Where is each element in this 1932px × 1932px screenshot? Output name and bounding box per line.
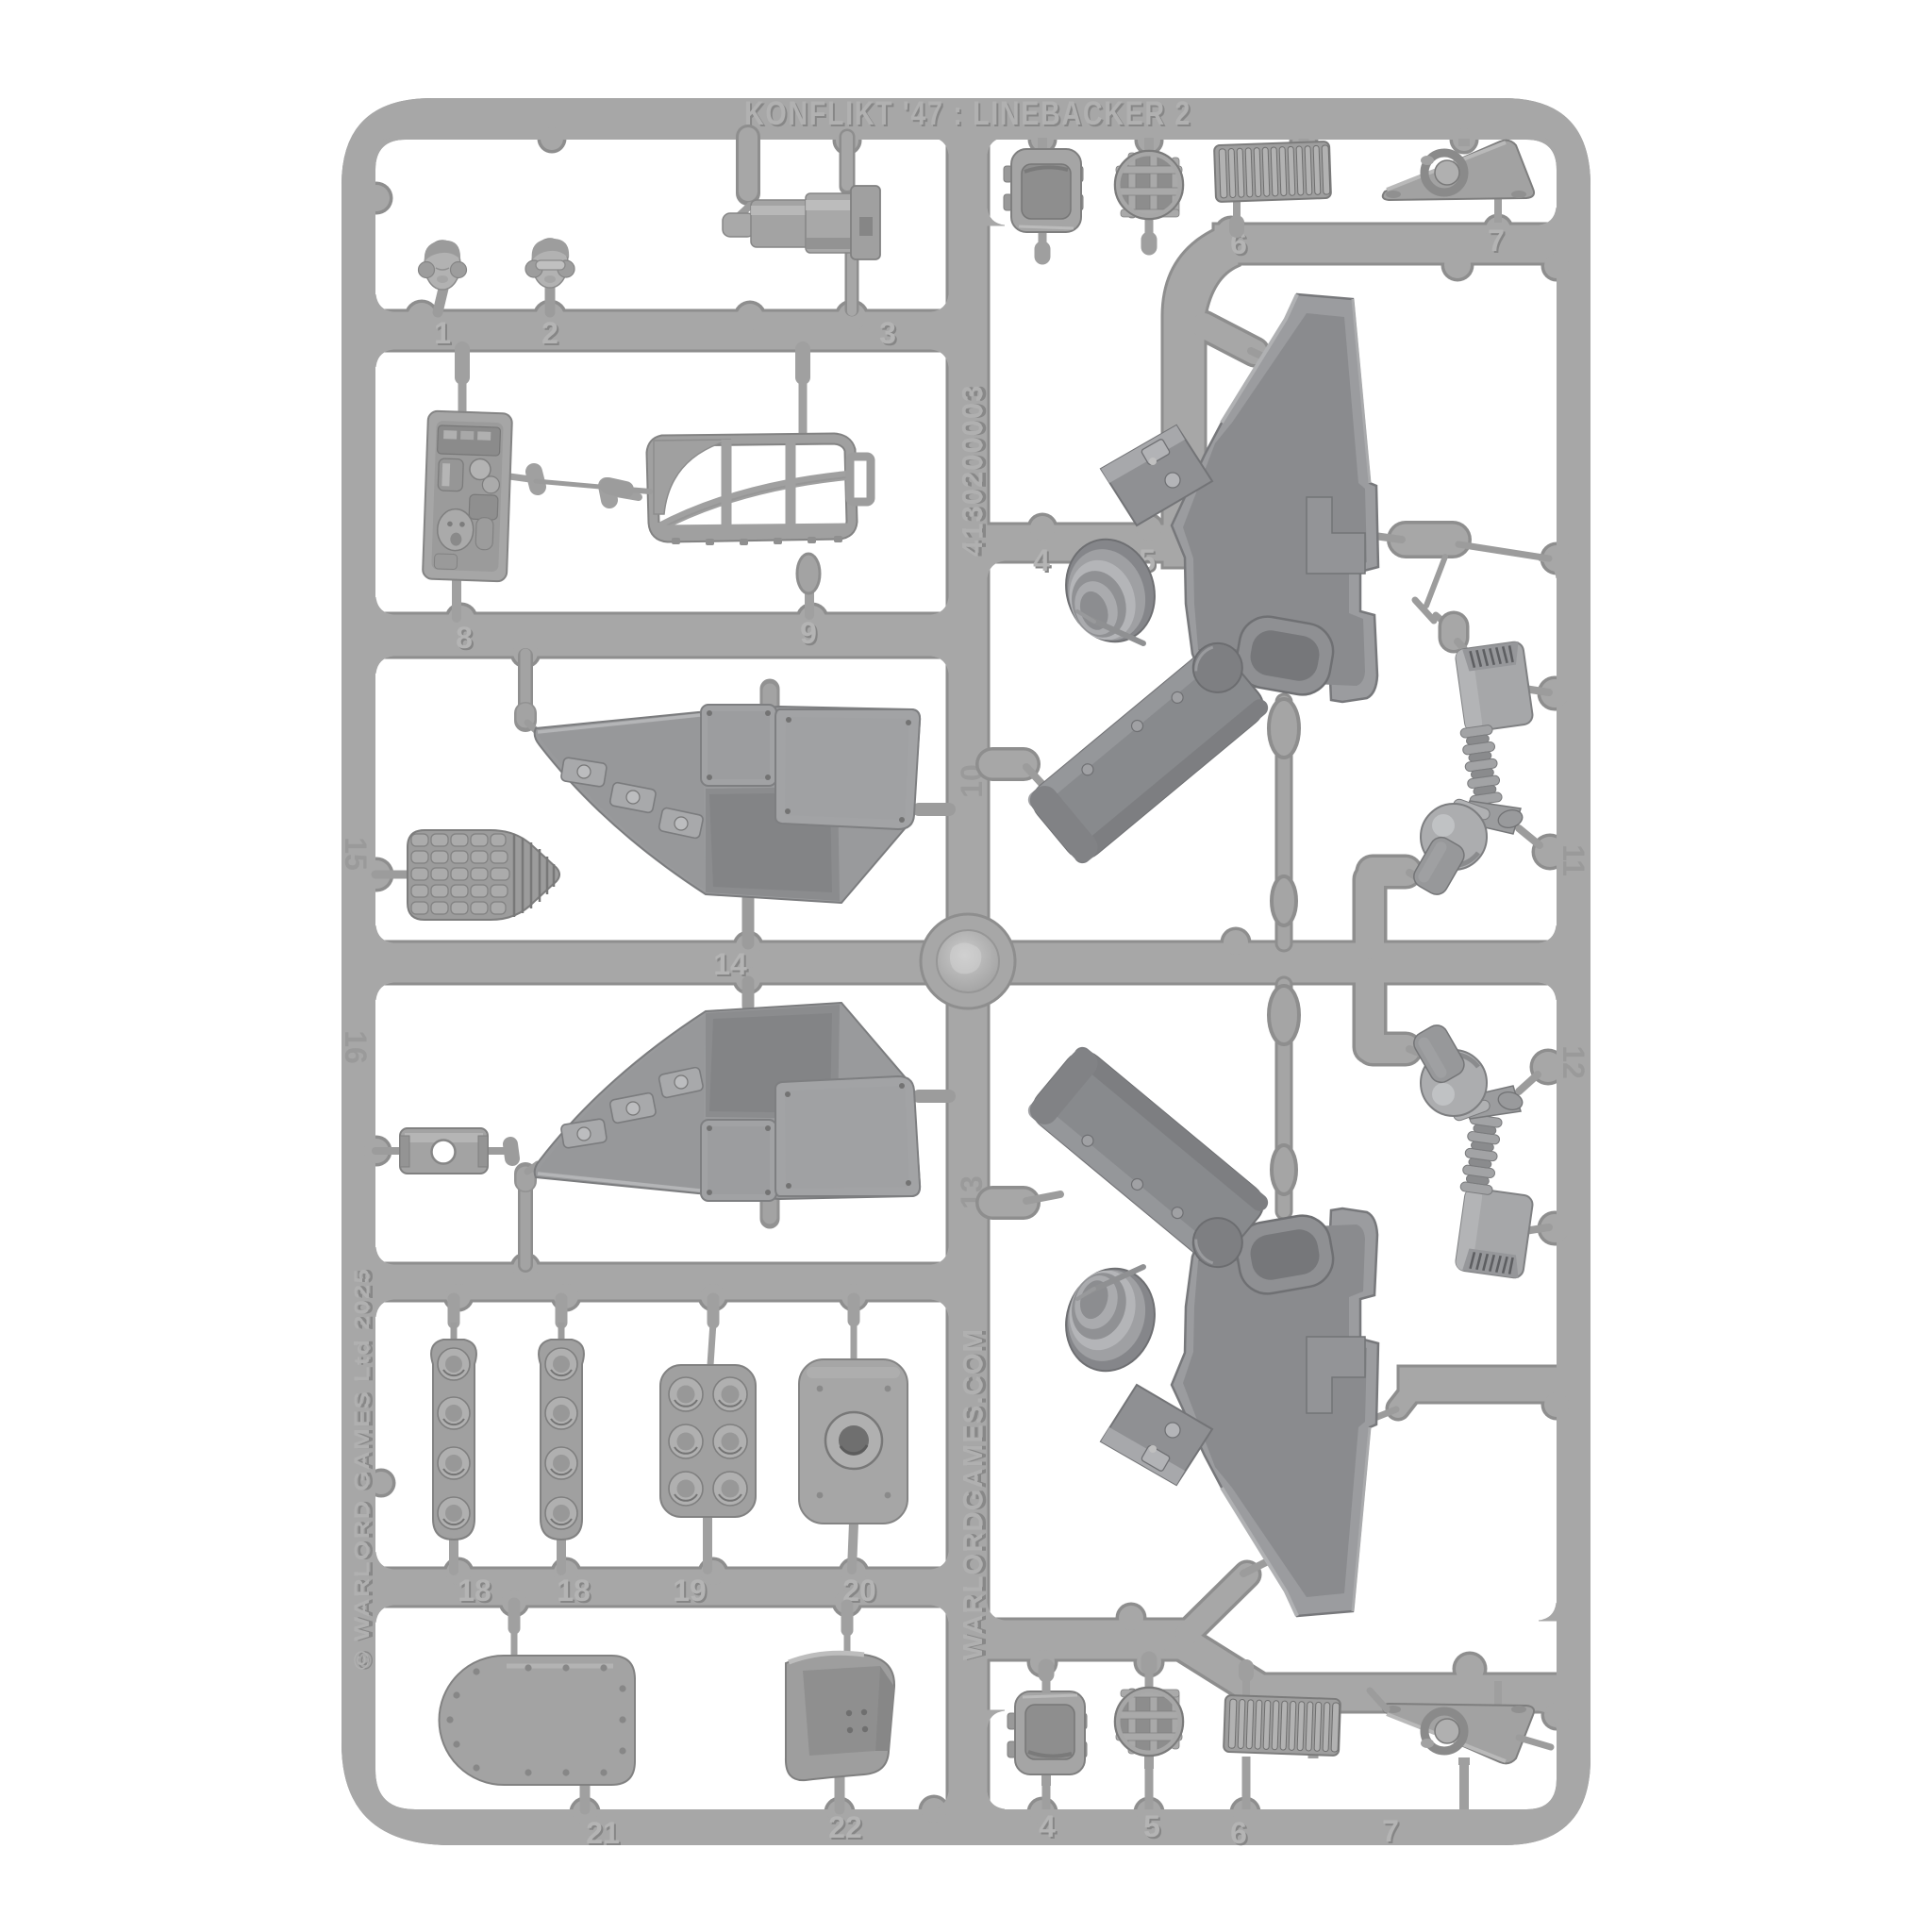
svg-text:7: 7	[1488, 224, 1505, 258]
svg-text:16: 16	[339, 1030, 373, 1064]
svg-text:KONFLIKT '47 : LINEBACKER 2: KONFLIKT '47 : LINEBACKER 2	[744, 95, 1191, 132]
svg-text:1: 1	[434, 316, 451, 350]
svg-text:8: 8	[456, 621, 473, 655]
svg-text:4: 4	[1039, 1809, 1056, 1843]
svg-text:4130200003: 4130200003	[956, 385, 989, 557]
svg-text:15: 15	[339, 837, 373, 871]
svg-text:14: 14	[713, 947, 747, 981]
svg-text:5: 5	[1143, 1809, 1160, 1843]
svg-text:22: 22	[828, 1810, 862, 1844]
svg-text:4: 4	[1033, 543, 1050, 577]
svg-text:19: 19	[673, 1574, 707, 1607]
svg-text:WARLORDGAMES.COM: WARLORDGAMES.COM	[958, 1328, 989, 1660]
svg-text:7: 7	[1382, 1814, 1399, 1848]
svg-text:11: 11	[1557, 844, 1591, 876]
svg-text:2: 2	[541, 316, 558, 350]
svg-text:12: 12	[1557, 1045, 1591, 1079]
svg-text:21: 21	[586, 1816, 620, 1850]
svg-text:9: 9	[800, 616, 817, 650]
svg-text:18: 18	[458, 1574, 491, 1607]
svg-text:3: 3	[879, 316, 896, 350]
svg-text:© WARLORD GAMES Ltd 2025: © WARLORD GAMES Ltd 2025	[350, 1268, 374, 1670]
svg-text:6: 6	[1230, 1816, 1247, 1850]
svg-text:18: 18	[557, 1574, 591, 1607]
